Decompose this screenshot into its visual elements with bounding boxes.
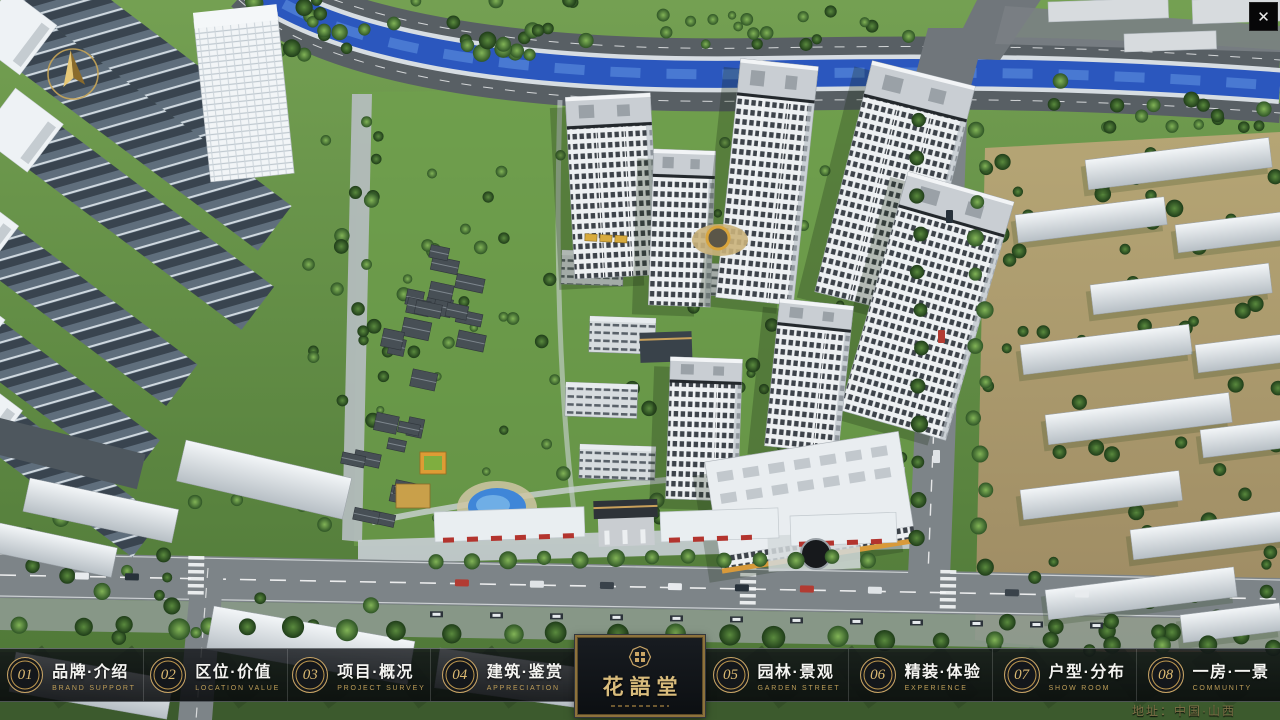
nav-label-zh-04: 建筑·鉴赏 bbox=[487, 658, 564, 682]
nav-item-location[interactable]: 02 区位·价值 LOCATION VALUE bbox=[144, 649, 288, 701]
close-button[interactable]: ✕ bbox=[1249, 2, 1278, 31]
logo-name: 花語堂 bbox=[597, 671, 684, 701]
nav-item-brand[interactable]: 01 品牌·介绍 BRAND SUPPORT bbox=[0, 649, 144, 701]
nav-group-left: 01 品牌·介绍 BRAND SUPPORT 02 区位·价值 LOCATION… bbox=[0, 649, 575, 701]
compass-icon bbox=[40, 34, 106, 110]
nav-item-views[interactable]: 08 一房·一景 COMMUNITY bbox=[1137, 649, 1280, 701]
nav-num-02: 02 bbox=[161, 667, 176, 684]
nav-badge-03: 03 bbox=[292, 657, 328, 693]
nav-label-en-01: BRAND SUPPORT bbox=[52, 685, 136, 692]
nav-item-floorplan[interactable]: 07 户型·分布 SHOW ROOM bbox=[993, 649, 1137, 701]
nav-label-zh-08: 一房·一景 bbox=[1193, 658, 1270, 682]
nav-label-zh-06: 精装·体验 bbox=[905, 658, 982, 682]
bottom-navbar: 01 品牌·介绍 BRAND SUPPORT 02 区位·价值 LOCATION… bbox=[0, 648, 1280, 702]
nav-badge-01: 01 bbox=[7, 657, 43, 693]
nav-label-en-08: COMMUNITY bbox=[1193, 685, 1252, 692]
nav-label-zh-07: 户型·分布 bbox=[1049, 658, 1126, 682]
nav-badge-04: 04 bbox=[442, 657, 478, 693]
nav-num-08: 08 bbox=[1158, 667, 1173, 684]
nav-num-05: 05 bbox=[723, 667, 738, 684]
nav-label-en-06: EXPERIENCE bbox=[905, 685, 968, 692]
nav-item-architecture[interactable]: 04 建筑·鉴赏 APPRECIATION bbox=[431, 649, 575, 701]
nav-badge-07: 07 bbox=[1004, 657, 1040, 693]
nav-label-en-07: SHOW ROOM bbox=[1049, 685, 1111, 692]
project-logo[interactable]: 花語堂 bbox=[575, 635, 705, 717]
nav-badge-02: 02 bbox=[150, 657, 186, 693]
nav-badge-05: 05 bbox=[713, 657, 749, 693]
nav-item-interior[interactable]: 06 精装·体验 EXPERIENCE bbox=[849, 649, 993, 701]
presentation-screen: ✕ 01 品牌·介绍 BRAND SUPPORT 02 区位·价值 LOCATI… bbox=[0, 0, 1280, 720]
nav-badge-08: 08 bbox=[1148, 657, 1184, 693]
nav-num-01: 01 bbox=[18, 667, 33, 684]
logo-seal-icon bbox=[628, 645, 652, 669]
nav-item-garden[interactable]: 05 园林·景观 GARDEN STREET bbox=[705, 649, 849, 701]
project-address: 地址：中国·山西 bbox=[1132, 702, 1236, 719]
nav-label-en-02: LOCATION VALUE bbox=[195, 685, 280, 692]
nav-label-en-05: GARDEN STREET bbox=[758, 685, 841, 692]
nav-num-03: 03 bbox=[303, 667, 318, 684]
nav-label-zh-02: 区位·价值 bbox=[195, 658, 272, 682]
nav-label-zh-03: 项目·概况 bbox=[337, 658, 414, 682]
nav-badge-06: 06 bbox=[860, 657, 896, 693]
nav-group-right: 05 园林·景观 GARDEN STREET 06 精装·体验 EXPERIEN… bbox=[705, 649, 1280, 701]
nav-num-06: 06 bbox=[870, 667, 885, 684]
logo-decorative-rule bbox=[611, 705, 669, 707]
nav-num-07: 07 bbox=[1014, 667, 1029, 684]
nav-item-project[interactable]: 03 项目·概况 PROJECT SURVEY bbox=[288, 649, 432, 701]
nav-label-en-04: APPRECIATION bbox=[487, 685, 560, 692]
masterplan-render bbox=[0, 0, 1280, 720]
nav-label-zh-01: 品牌·介绍 bbox=[52, 658, 129, 682]
nav-num-04: 04 bbox=[452, 667, 467, 684]
nav-label-zh-05: 园林·景观 bbox=[758, 658, 835, 682]
nav-label-en-03: PROJECT SURVEY bbox=[337, 685, 425, 692]
